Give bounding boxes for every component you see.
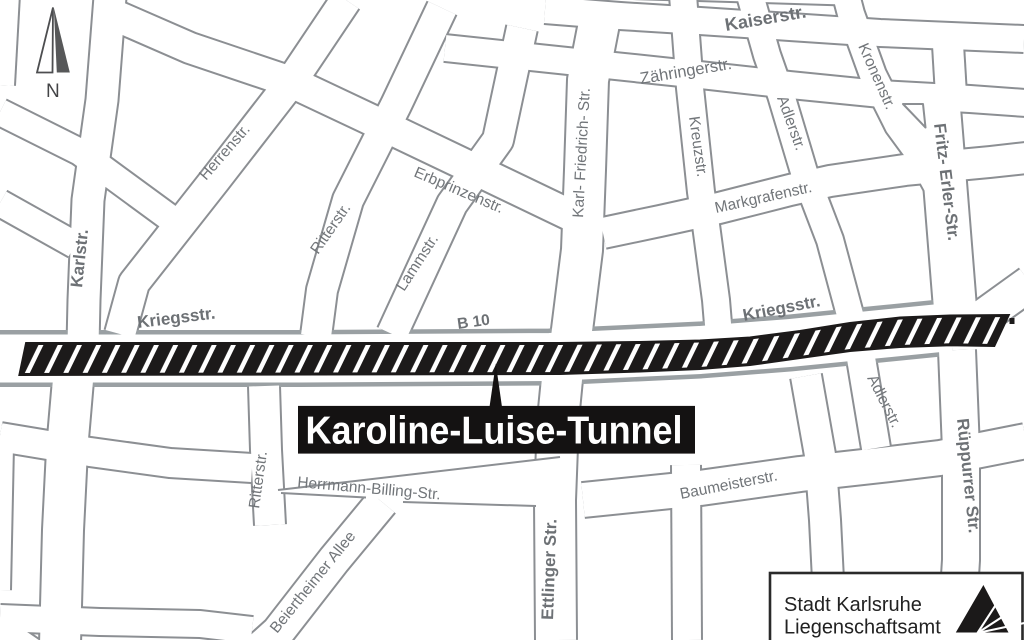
svg-text:N: N xyxy=(46,81,60,102)
svg-text:Stadt Karlsruhe: Stadt Karlsruhe xyxy=(784,594,922,616)
svg-text:Ettlinger Str.: Ettlinger Str. xyxy=(538,518,561,620)
svg-text:Karoline-Luise-Tunnel: Karoline-Luise-Tunnel xyxy=(306,410,683,453)
svg-text:Liegenschaftsamt: Liegenschaftsamt xyxy=(784,617,941,639)
